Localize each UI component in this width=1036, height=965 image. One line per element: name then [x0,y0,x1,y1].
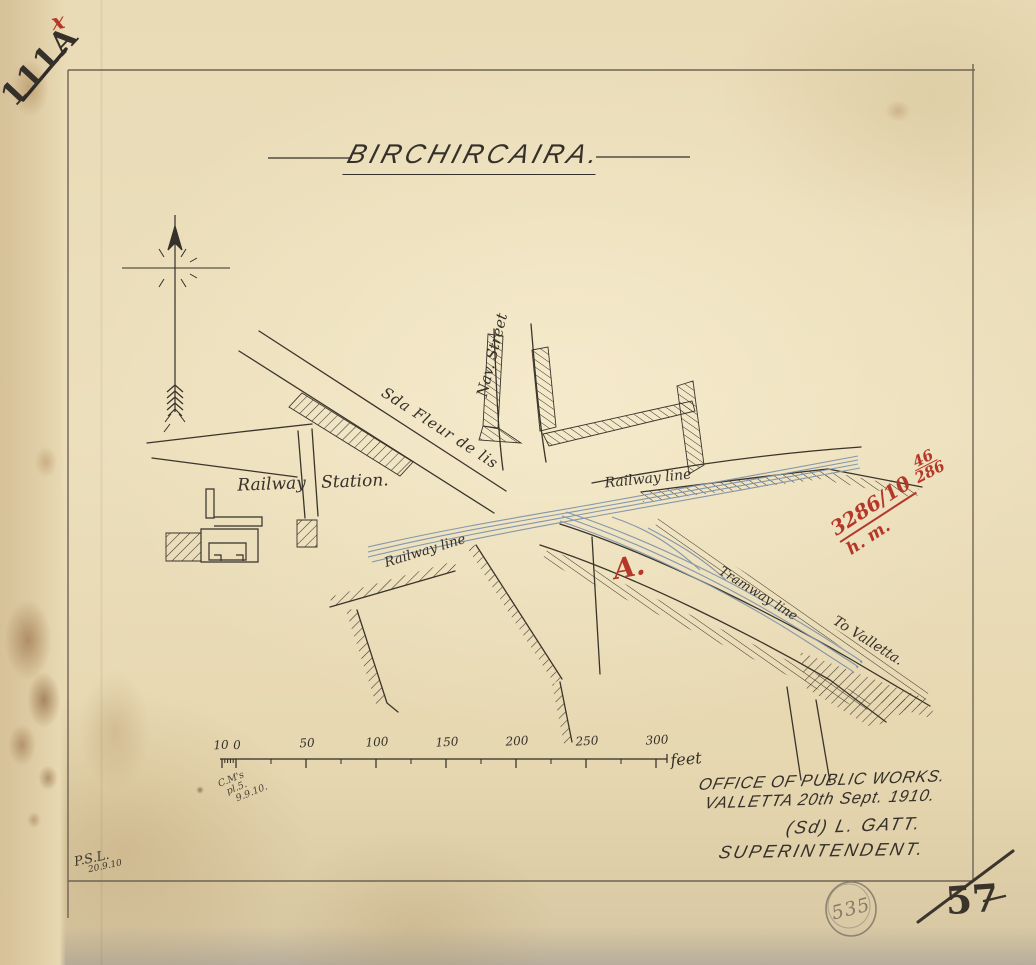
scale-unit-label: feet [670,748,703,770]
signature-title-line: SUPERINTENDENT. [717,839,928,864]
paper-stain [80,670,150,790]
building-hatching [166,334,934,744]
scale-tick-label: 300 [645,732,669,747]
scale-tick-label: 10 [213,738,229,753]
north-arrow [122,215,230,432]
scale-tick-label: 50 [299,736,315,751]
label-point-a: A. [611,548,648,586]
corner-number-57: 57 [944,875,1000,924]
scale-tick-label: 250 [575,733,599,748]
scale-bar [220,754,667,768]
paper-stain [885,100,911,122]
railway-station-building [201,489,262,562]
scale-tick-label: 0 [233,738,241,752]
scale-tick-label: 100 [365,734,389,749]
plan-sheet: 111A x BIRCHIRCAIRA. Nav. Street Sda Fle… [0,0,1036,965]
map-title: BIRCHIRCAIRA. [342,139,605,175]
paper-stain [196,786,204,794]
scale-tick-label: 200 [505,733,529,748]
tramway-tracks [560,512,862,673]
scale-tick-label: 150 [435,734,459,749]
